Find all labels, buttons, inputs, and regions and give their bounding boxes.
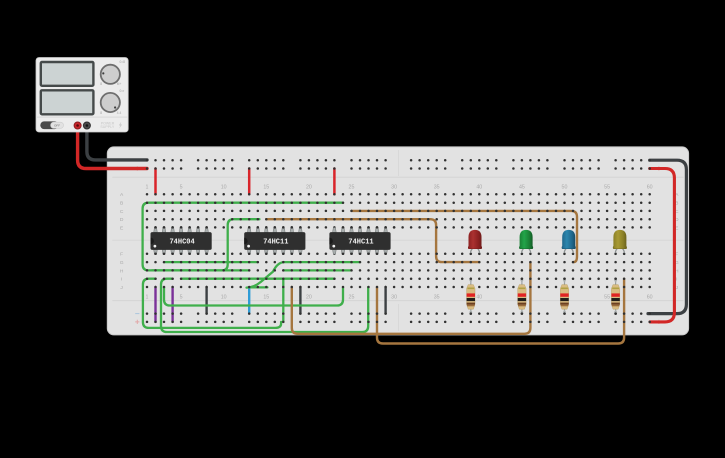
svg-text:D: D	[120, 217, 124, 223]
svg-text:I: I	[121, 277, 122, 283]
svg-text:SUPPLY: SUPPLY	[100, 125, 115, 129]
svg-text:10: 10	[221, 295, 227, 301]
svg-text:35: 35	[434, 185, 440, 191]
svg-text:M+: M+	[117, 82, 122, 86]
svg-text:0=8: 0=8	[120, 60, 126, 64]
svg-text:40: 40	[476, 185, 482, 191]
svg-text:8: 8	[100, 111, 102, 115]
svg-text:1: 1	[146, 295, 149, 301]
svg-text:20: 20	[306, 295, 312, 301]
svg-text:C: C	[120, 209, 124, 215]
svg-text:45: 45	[519, 185, 525, 191]
svg-text:20: 20	[306, 185, 312, 191]
svg-text:5: 5	[180, 185, 183, 191]
svg-text:74HC11: 74HC11	[348, 239, 373, 247]
svg-text:G: G	[120, 260, 124, 266]
svg-text:60: 60	[647, 185, 653, 191]
svg-text:30: 30	[391, 295, 397, 301]
svg-text:B: B	[120, 201, 123, 207]
svg-text:5: 5	[180, 295, 183, 301]
svg-text:8: 8	[100, 82, 102, 86]
svg-text:25: 25	[349, 185, 355, 191]
svg-text:74HC04: 74HC04	[169, 239, 194, 247]
svg-text:10: 10	[221, 185, 227, 191]
svg-text:55: 55	[604, 295, 610, 301]
svg-text:30: 30	[391, 185, 397, 191]
svg-text:74HC11: 74HC11	[263, 239, 288, 247]
svg-text:25: 25	[349, 295, 355, 301]
svg-text:15: 15	[263, 185, 269, 191]
svg-text:H: H	[120, 268, 124, 274]
svg-text:OFF: OFF	[54, 124, 60, 128]
svg-text:15: 15	[263, 295, 269, 301]
svg-text:55: 55	[604, 185, 610, 191]
svg-text:1: 1	[146, 185, 149, 191]
svg-text:4.4: 4.4	[117, 111, 122, 115]
svg-text:40: 40	[476, 295, 482, 301]
svg-text:60: 60	[647, 295, 653, 301]
svg-text:I: I	[676, 277, 677, 283]
svg-text:50: 50	[562, 185, 568, 191]
svg-text:F: F	[120, 252, 123, 258]
svg-text:35: 35	[434, 295, 440, 301]
